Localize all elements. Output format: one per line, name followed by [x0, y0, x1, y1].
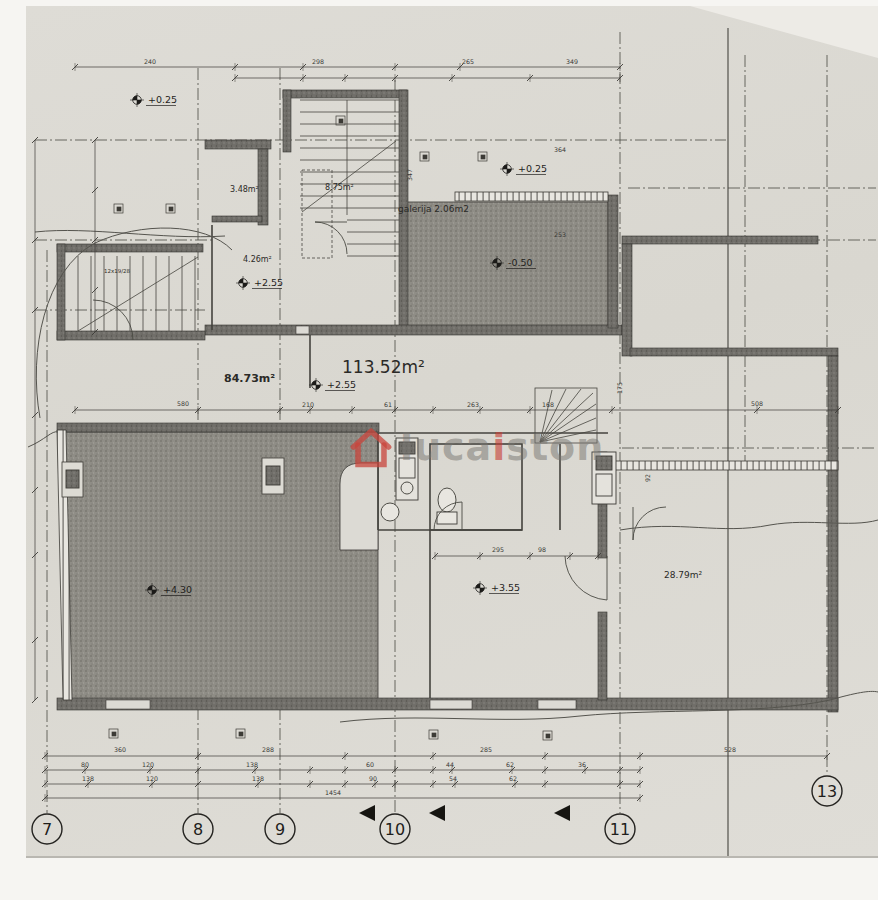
svg-text:44: 44 [446, 761, 454, 768]
column-symbol [62, 462, 83, 497]
grid-bubble: 11 [605, 814, 635, 844]
scanned-floor-plan: 2402982653493642535802106126316850829598… [0, 0, 878, 900]
svg-text:+0.25: +0.25 [148, 94, 177, 105]
galerija-top-band [455, 192, 608, 201]
section-arrows [359, 805, 570, 821]
svg-text:360: 360 [114, 746, 126, 753]
svg-text:295: 295 [492, 546, 504, 553]
svg-text:265: 265 [462, 58, 474, 65]
area-label: 3.48m² [230, 185, 259, 194]
elevation-marker: -0.50 [490, 256, 536, 270]
svg-text:1454: 1454 [325, 789, 341, 796]
grid-bubble: 13 [812, 776, 842, 806]
svg-text:+3.55: +3.55 [491, 582, 520, 593]
svg-text:263: 263 [467, 401, 479, 408]
svg-text:92: 92 [644, 474, 651, 482]
svg-text:120: 120 [146, 775, 158, 782]
area-label: 12x19/28 [104, 268, 131, 274]
svg-text:168: 168 [542, 401, 554, 408]
svg-text:90: 90 [369, 775, 377, 782]
svg-text:62: 62 [506, 761, 514, 768]
svg-text:13: 13 [817, 782, 837, 801]
svg-text:7: 7 [42, 820, 52, 839]
grid-bubble: 7 [32, 814, 62, 844]
section-arrow [359, 805, 375, 821]
svg-text:80: 80 [81, 761, 89, 768]
tall-unit [592, 452, 616, 504]
svg-text:+2.55: +2.55 [327, 379, 356, 390]
area-label: 84.73m² [224, 372, 275, 385]
svg-text:138: 138 [82, 775, 94, 782]
svg-text:138: 138 [246, 761, 258, 768]
floor-plan-drawing: 2402982653493642535802106126316850829598… [0, 0, 878, 900]
grid-bubble: 9 [265, 814, 295, 844]
svg-text:347: 347 [406, 169, 413, 181]
area-label: 113.52m² [342, 357, 425, 377]
elevation-marker: +3.55 [473, 581, 520, 595]
area-label: 28.79m² [664, 570, 703, 580]
svg-text:508: 508 [751, 400, 763, 407]
elevation-marker: +2.55 [309, 378, 356, 392]
svg-text:10: 10 [385, 820, 405, 839]
svg-text:+0.25: +0.25 [518, 163, 547, 174]
tall-unit [396, 438, 418, 500]
svg-text:138: 138 [252, 775, 264, 782]
hatch-main-slab [65, 432, 378, 700]
area-label: 8.75m² [325, 183, 354, 192]
svg-text:253: 253 [554, 231, 566, 238]
svg-text:285: 285 [480, 746, 492, 753]
svg-text:54: 54 [449, 775, 457, 782]
svg-text:+4.30: +4.30 [163, 584, 192, 595]
section-arrow [429, 805, 445, 821]
svg-text:-0.50: -0.50 [508, 257, 533, 268]
area-label: galerija 2.06m2 [398, 204, 469, 214]
elevation-marker: +4.30 [145, 583, 192, 597]
grid-bubble: 10 [380, 814, 410, 844]
mid-right-band [612, 461, 838, 470]
svg-text:210: 210 [302, 401, 314, 408]
svg-text:61: 61 [384, 401, 392, 408]
section-arrow [554, 805, 570, 821]
svg-text:528: 528 [724, 746, 736, 753]
svg-text:8: 8 [193, 820, 203, 839]
svg-text:62: 62 [509, 775, 517, 782]
svg-text:175: 175 [616, 382, 623, 394]
hatch-notch [340, 463, 378, 550]
svg-text:240: 240 [144, 58, 156, 65]
svg-text:60: 60 [366, 761, 374, 768]
elevation-marker: +2.55 [236, 276, 283, 290]
svg-text:11: 11 [610, 820, 630, 839]
hatch-regions [65, 202, 608, 700]
svg-text:298: 298 [312, 58, 324, 65]
svg-text:364: 364 [554, 146, 566, 153]
elevation-marker: +0.25 [130, 93, 177, 107]
svg-text:36: 36 [578, 761, 586, 768]
grid-bubble: 8 [183, 814, 213, 844]
svg-text:580: 580 [177, 400, 189, 407]
washbasin [381, 503, 399, 521]
svg-text:349: 349 [566, 58, 578, 65]
svg-text:288: 288 [262, 746, 274, 753]
column-symbol [262, 458, 284, 494]
svg-text:9: 9 [275, 820, 285, 839]
svg-text:120: 120 [142, 761, 154, 768]
svg-text:+2.55: +2.55 [254, 277, 283, 288]
area-label: 4.26m² [243, 255, 272, 264]
elevation-marker: +0.25 [500, 162, 547, 176]
svg-text:98: 98 [538, 546, 546, 553]
